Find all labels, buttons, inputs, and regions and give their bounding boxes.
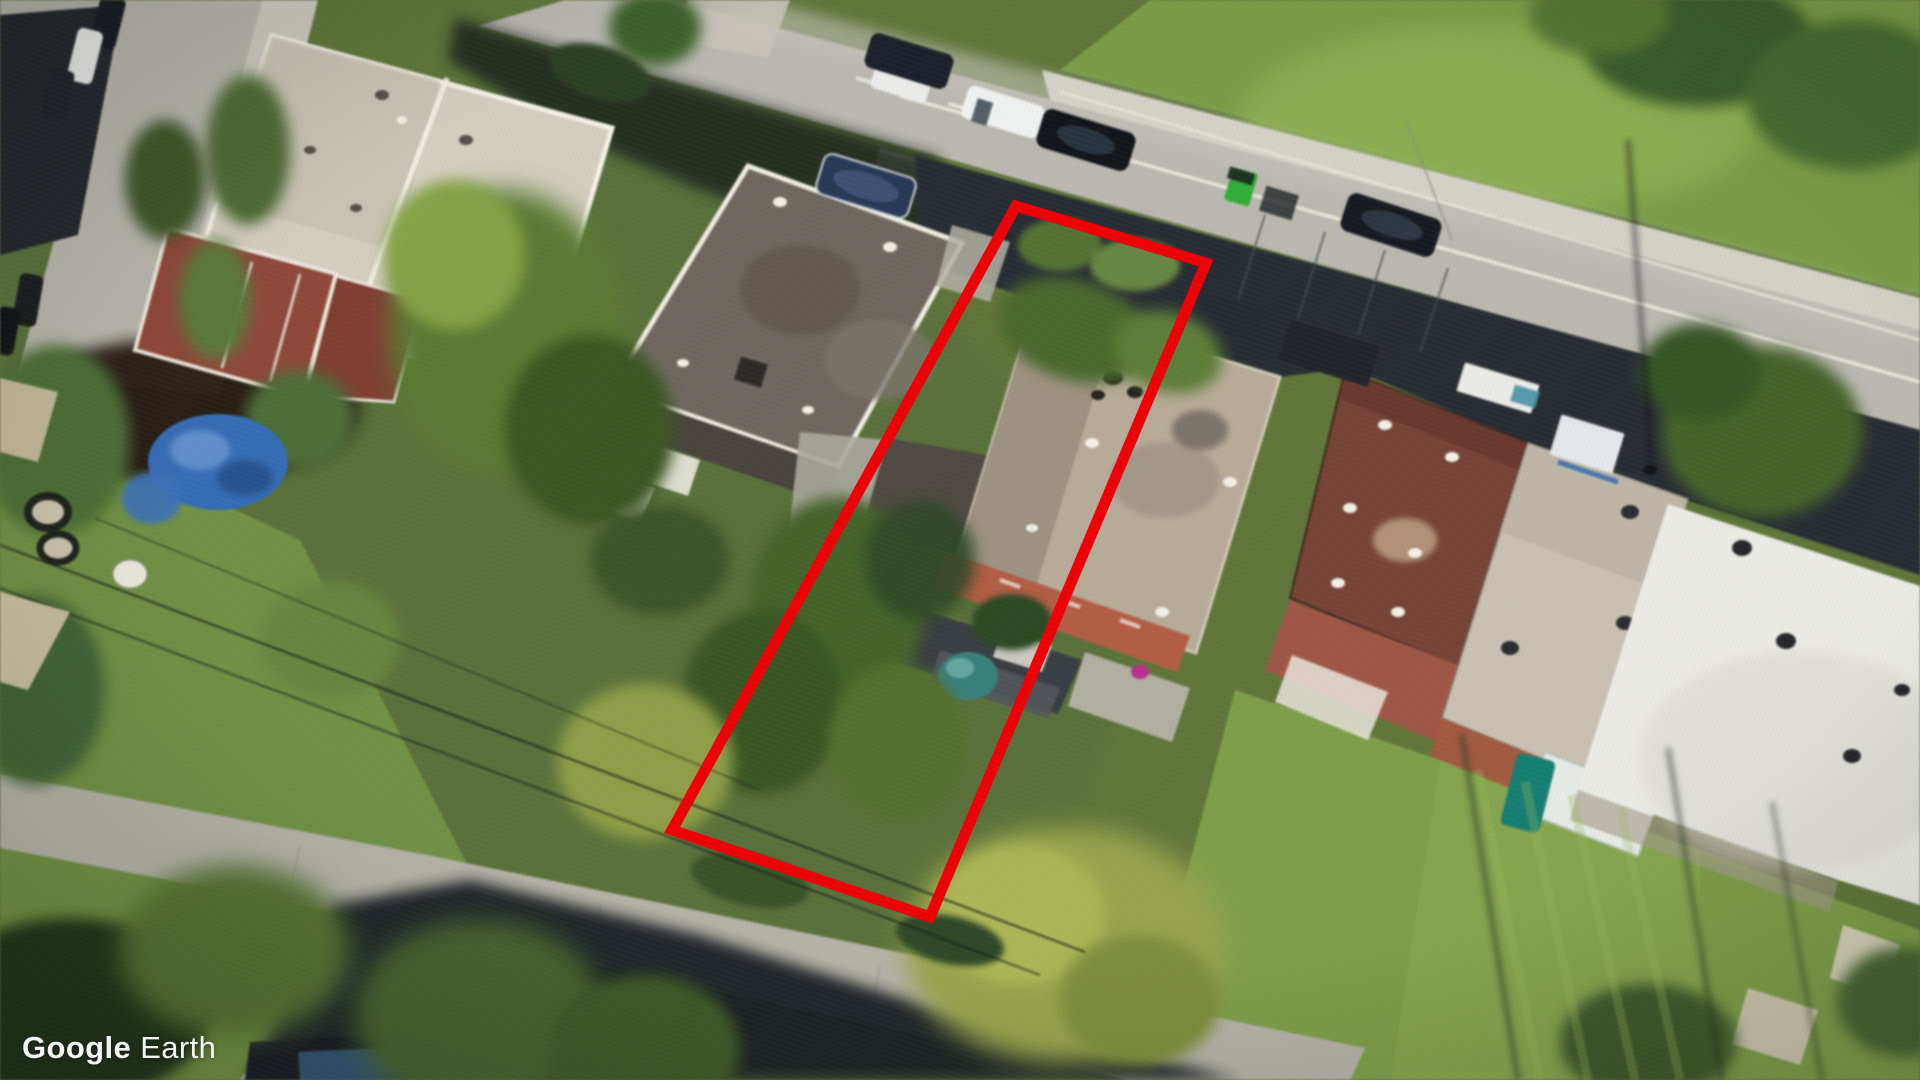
watermark-product: Earth xyxy=(140,1030,216,1065)
google-earth-watermark: GoogleEarth xyxy=(22,1030,216,1066)
google-earth-canvas[interactable]: GoogleEarth xyxy=(0,0,1920,1080)
parcel-highlight-overlay xyxy=(0,0,1920,1080)
watermark-brand: Google xyxy=(22,1030,131,1065)
parcel-boundary-outline xyxy=(672,206,1206,917)
